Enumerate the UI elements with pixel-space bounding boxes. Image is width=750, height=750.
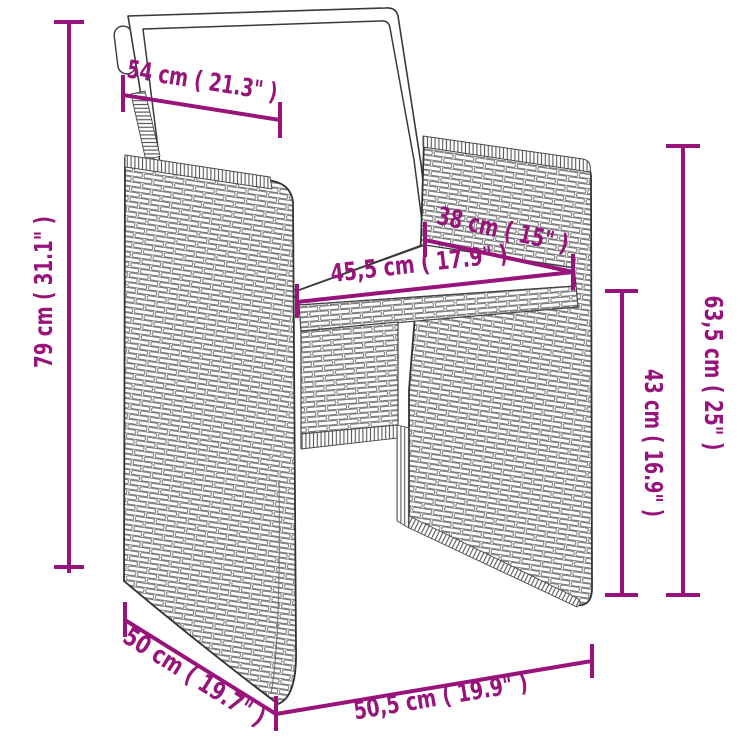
dimension-seat-height: 43 cm ( 16.9" ) <box>605 291 668 595</box>
dimension-armrest-height: 63,5 cm ( 25" ) <box>666 146 728 595</box>
chair-line-art <box>113 8 592 704</box>
dimension-overall-height: 79 cm ( 31.1" ) <box>29 22 84 573</box>
right-panel-front-coil-column <box>397 425 409 528</box>
seat-height-label: 43 cm ( 16.9" ) <box>639 369 668 517</box>
overall-height-label: 79 cm ( 31.1" ) <box>29 216 58 368</box>
armrest-height-label: 63,5 cm ( 25" ) <box>699 296 728 451</box>
chair-dimension-diagram: 54 cm ( 21.3" ) 79 cm ( 31.1" ) 38 cm ( … <box>0 0 750 750</box>
base-width-label: 50,5 cm ( 19.9" ) <box>351 668 529 726</box>
left-side-panel <box>124 158 296 704</box>
dimension-diagram-canvas: 54 cm ( 21.3" ) 79 cm ( 31.1" ) 38 cm ( … <box>0 0 750 750</box>
dimension-base-width: 50,5 cm ( 19.9" ) <box>276 644 592 725</box>
